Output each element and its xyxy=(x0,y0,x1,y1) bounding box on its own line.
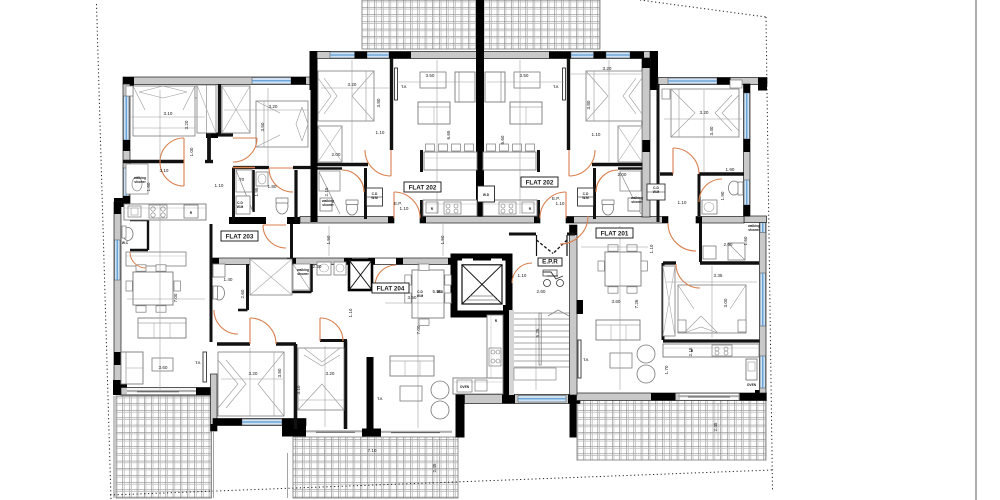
svg-text:shower: shower xyxy=(134,180,146,184)
svg-text:.70: .70 xyxy=(238,177,245,182)
svg-text:2.30: 2.30 xyxy=(313,264,322,269)
svg-text:1.10: 1.10 xyxy=(556,201,565,206)
svg-text:W.D: W.D xyxy=(483,193,490,197)
svg-text:3.35: 3.35 xyxy=(714,273,723,278)
svg-text:2.60: 2.60 xyxy=(537,289,546,294)
svg-text:W.C: W.C xyxy=(122,241,129,245)
svg-text:3.20: 3.20 xyxy=(700,110,709,115)
svg-text:E.P.: E.P. xyxy=(394,201,402,206)
svg-text:1.70: 1.70 xyxy=(664,365,669,374)
svg-text:2.60: 2.60 xyxy=(240,289,245,298)
svg-text:3.50: 3.50 xyxy=(520,73,529,78)
svg-text:2.15: 2.15 xyxy=(324,187,329,196)
svg-text:3.50: 3.50 xyxy=(426,73,435,78)
svg-text:W.M: W.M xyxy=(371,196,378,200)
svg-text:7.00: 7.00 xyxy=(173,293,178,302)
svg-text:T.V.: T.V. xyxy=(377,397,383,401)
svg-text:W.M: W.M xyxy=(237,205,244,209)
svg-text:3.60: 3.60 xyxy=(159,365,168,370)
svg-text:3.50: 3.50 xyxy=(260,122,265,131)
svg-text:2.15: 2.15 xyxy=(688,347,693,356)
svg-text:FLAT 202: FLAT 202 xyxy=(409,184,437,191)
svg-text:OVEN: OVEN xyxy=(460,385,470,389)
svg-text:3.20: 3.20 xyxy=(269,104,278,109)
svg-text:5.25: 5.25 xyxy=(535,328,540,337)
svg-text:6.65: 6.65 xyxy=(446,130,451,139)
svg-text:shower: shower xyxy=(322,203,334,207)
svg-text:1.60: 1.60 xyxy=(146,182,151,191)
svg-text:FLAT 201: FLAT 201 xyxy=(601,230,629,237)
svg-text:2.45: 2.45 xyxy=(432,463,437,472)
svg-text:3.80: 3.80 xyxy=(277,368,282,377)
svg-text:1.90: 1.90 xyxy=(720,191,725,200)
svg-text:1.50: 1.50 xyxy=(440,235,445,244)
svg-text:shower: shower xyxy=(297,272,309,276)
svg-text:T.V.: T.V. xyxy=(195,361,201,365)
svg-text:1.10: 1.10 xyxy=(592,132,601,137)
svg-text:shower: shower xyxy=(631,200,643,204)
svg-text:2.00: 2.00 xyxy=(618,172,627,177)
svg-text:1.10: 1.10 xyxy=(348,308,353,317)
svg-text:7.26: 7.26 xyxy=(634,299,639,308)
svg-text:2.60: 2.60 xyxy=(724,242,733,247)
svg-text:2.00: 2.00 xyxy=(332,152,341,157)
svg-text:FLAT 204: FLAT 204 xyxy=(377,285,405,292)
svg-text:1.10: 1.10 xyxy=(678,200,687,205)
svg-text:3.80: 3.80 xyxy=(586,100,591,109)
svg-text:1.10: 1.10 xyxy=(400,206,409,211)
svg-text:OVEN: OVEN xyxy=(747,383,757,387)
svg-text:3.20: 3.20 xyxy=(184,120,189,129)
svg-text:1.00: 1.00 xyxy=(189,147,194,156)
svg-text:1.10: 1.10 xyxy=(649,244,654,253)
svg-text:3.20: 3.20 xyxy=(603,66,612,71)
svg-text:1.60: 1.60 xyxy=(743,236,748,245)
svg-text:3.10: 3.10 xyxy=(160,168,169,173)
svg-text:1.80: 1.80 xyxy=(268,184,277,189)
svg-text:FLAT 203: FLAT 203 xyxy=(226,233,254,240)
svg-text:3.20: 3.20 xyxy=(249,371,258,376)
svg-text:1.90: 1.90 xyxy=(726,167,735,172)
svg-text:3.10: 3.10 xyxy=(164,111,173,116)
svg-text:T.V.: T.V. xyxy=(583,358,589,362)
svg-text:W.D: W.D xyxy=(437,290,444,294)
svg-text:6.60: 6.60 xyxy=(500,135,505,144)
svg-text:1.95: 1.95 xyxy=(254,187,259,196)
svg-text:1.40: 1.40 xyxy=(224,277,233,282)
svg-text:1.10: 1.10 xyxy=(518,273,527,278)
svg-text:T.V.: T.V. xyxy=(553,85,559,89)
svg-text:shower: shower xyxy=(748,228,760,232)
svg-text:W.M: W.M xyxy=(653,190,660,194)
svg-text:W.M: W.M xyxy=(582,196,589,200)
svg-text:E.P.R: E.P.R xyxy=(542,258,558,265)
svg-text:1.10: 1.10 xyxy=(376,130,385,135)
svg-text:1.10: 1.10 xyxy=(215,183,224,188)
svg-text:3.00: 3.00 xyxy=(723,298,728,307)
svg-text:W.M: W.M xyxy=(417,294,424,298)
svg-text:2.45: 2.45 xyxy=(713,422,718,431)
svg-text:3.40: 3.40 xyxy=(709,126,714,135)
svg-text:FLAT 202: FLAT 202 xyxy=(526,179,554,186)
svg-text:3.10: 3.10 xyxy=(296,385,301,394)
svg-text:3.50: 3.50 xyxy=(408,295,417,300)
svg-text:3.80: 3.80 xyxy=(376,98,381,107)
svg-text:3.20: 3.20 xyxy=(326,371,335,376)
svg-text:E.P.: E.P. xyxy=(552,196,560,201)
svg-text:3.20: 3.20 xyxy=(348,82,357,87)
svg-text:1.50: 1.50 xyxy=(326,235,331,244)
svg-text:7.10: 7.10 xyxy=(368,448,377,453)
svg-text:7.00: 7.00 xyxy=(416,325,421,334)
svg-text:T.V.: T.V. xyxy=(401,85,407,89)
svg-text:3.60: 3.60 xyxy=(612,299,621,304)
